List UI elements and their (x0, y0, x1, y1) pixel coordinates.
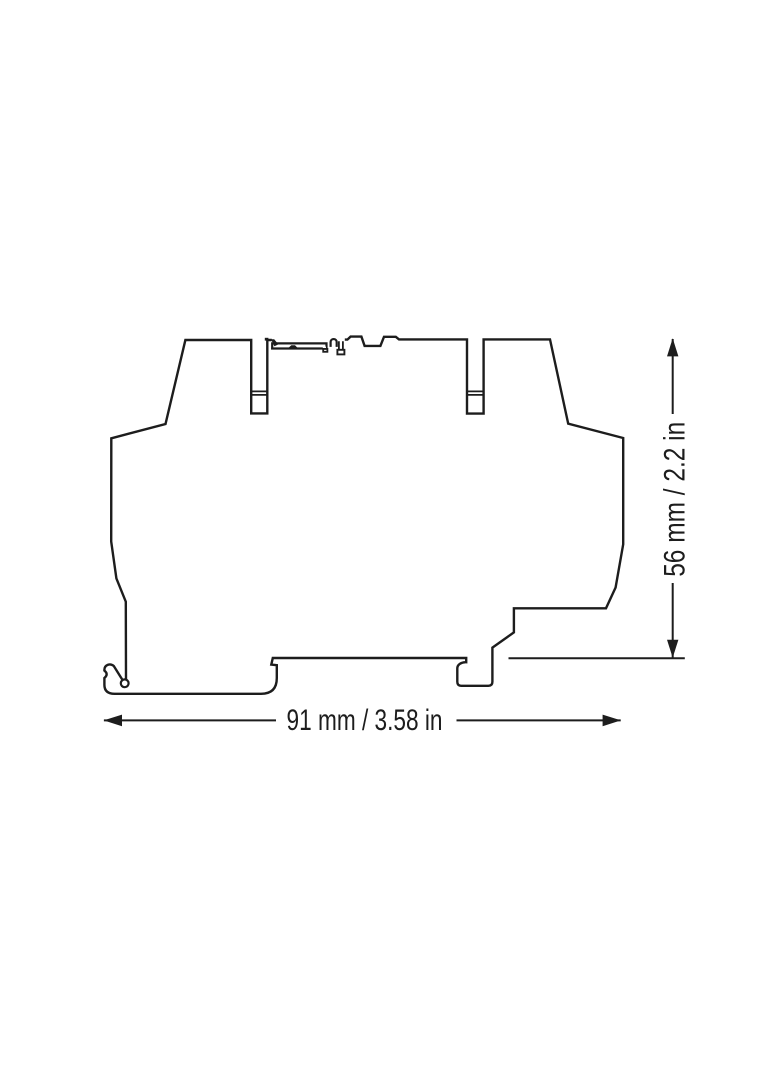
svg-text:56 mm / 2.2 in: 56 mm / 2.2 in (658, 422, 691, 577)
svg-text:91 mm / 3.58 in: 91 mm / 3.58 in (287, 704, 443, 737)
